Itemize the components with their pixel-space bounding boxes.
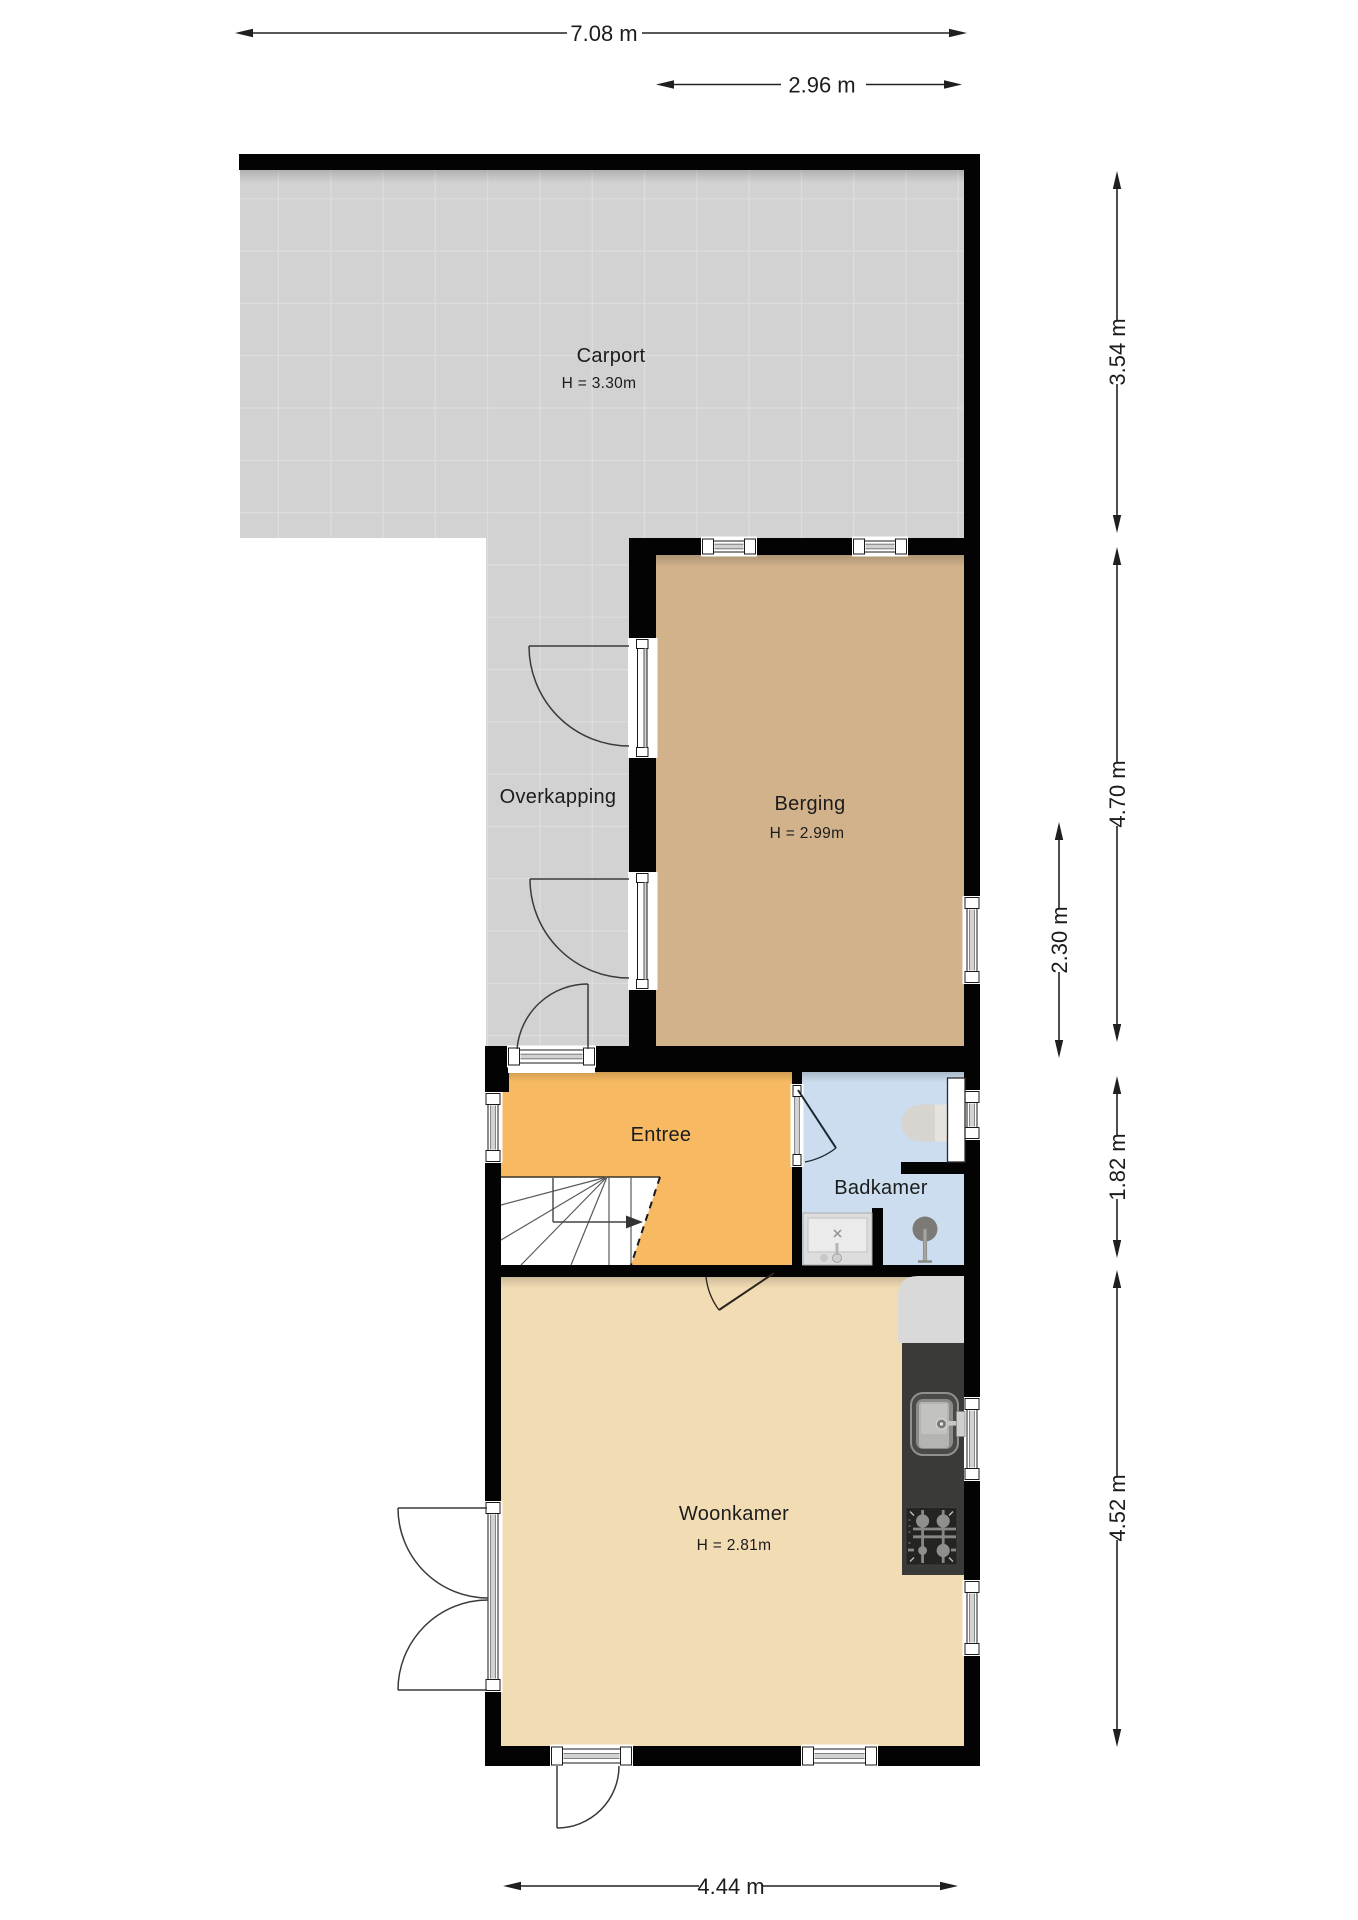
- svg-text:Carport: Carport: [577, 345, 646, 367]
- svg-text:H = 3.30m: H = 3.30m: [562, 375, 637, 392]
- svg-text:Berging: Berging: [774, 793, 845, 815]
- svg-text:2.96 m: 2.96 m: [788, 73, 855, 98]
- svg-text:7.08 m: 7.08 m: [570, 21, 637, 46]
- svg-text:4.52 m: 4.52 m: [1105, 1474, 1130, 1541]
- svg-text:H = 2.99m: H = 2.99m: [770, 825, 845, 842]
- svg-text:Woonkamer: Woonkamer: [679, 1503, 789, 1525]
- svg-text:Entree: Entree: [631, 1124, 692, 1146]
- svg-text:Overkapping: Overkapping: [500, 786, 617, 808]
- svg-text:4.44 m: 4.44 m: [697, 1874, 764, 1899]
- svg-text:1.82 m: 1.82 m: [1105, 1133, 1130, 1200]
- svg-text:3.54 m: 3.54 m: [1105, 318, 1130, 385]
- svg-text:H = 2.81m: H = 2.81m: [697, 1537, 772, 1554]
- svg-text:2.30 m: 2.30 m: [1047, 906, 1072, 973]
- svg-text:Badkamer: Badkamer: [834, 1177, 928, 1199]
- svg-text:4.70 m: 4.70 m: [1105, 760, 1130, 827]
